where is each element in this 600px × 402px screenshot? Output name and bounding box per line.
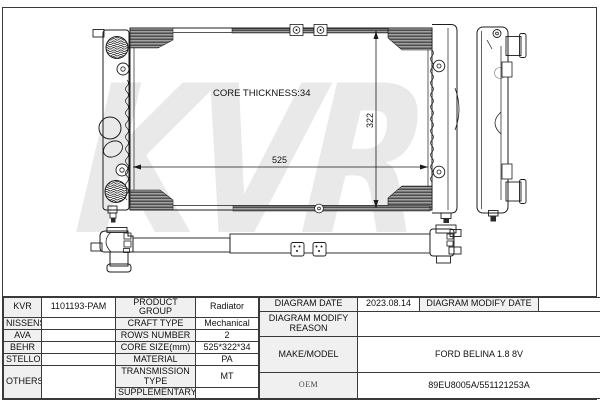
property-label: ROWS NUMBER [116, 330, 196, 342]
page-frame: KVR [2, 7, 597, 400]
property-value: 2 [196, 330, 259, 342]
part-number-cell: 1101193-PAM [42, 297, 116, 317]
property-value: Radiator [196, 297, 259, 317]
diagram-modify-date-value [539, 297, 600, 311]
radiator-front-view [93, 25, 459, 224]
drawing-area: KVR [3, 8, 596, 296]
side-tab-top [502, 62, 512, 77]
make-model-value: FORD BELINA 1.8 8V [358, 337, 600, 373]
dimension-width [133, 165, 428, 170]
part-number-cell [42, 354, 116, 366]
property-value: Mechanical [196, 318, 259, 330]
property-value: 525*322*34 [196, 342, 259, 354]
bottom-view-right-block [430, 225, 461, 263]
diagram-page: KVR [0, 0, 600, 402]
bottom-view-clips [291, 243, 326, 257]
property-label: MATERIAL [116, 354, 196, 366]
side-tab-bottom [502, 164, 512, 179]
width-dimension-label: 525 [272, 155, 287, 165]
height-dimension-label: 322 [365, 113, 375, 128]
diagram-modify-date-label: DIAGRAM MODIFY DATE [420, 297, 539, 311]
core-thickness-label: CORE THICKNESS:34 [213, 88, 311, 99]
fin-block-top-right [388, 28, 432, 50]
brand-cell: BEHR [4, 342, 42, 354]
brand-cell: AVA [4, 330, 42, 342]
diagram-date-label: DIAGRAM DATE [260, 297, 358, 311]
brand-cell: OTHERS [4, 366, 42, 399]
part-number-cell [42, 330, 116, 342]
property-label: SUPPLEMENTARY [116, 388, 196, 399]
brand-cell: KVR [4, 297, 42, 317]
radiator-side-view [477, 27, 526, 222]
left-tank-crimp-edge [126, 80, 129, 200]
property-value: PA [196, 354, 259, 366]
oem-label: OEM [260, 373, 358, 399]
left-tank [93, 30, 129, 223]
brand-cell: STELLOX [4, 354, 42, 366]
fin-block-bottom-left [130, 190, 173, 210]
core-outline [130, 28, 432, 210]
filler-cap [106, 37, 128, 59]
part-number-cell [42, 366, 116, 399]
fin-strip-bottom [233, 206, 430, 212]
drain-boss [105, 181, 127, 203]
fin-block-top-left [130, 28, 173, 48]
diagram-modify-reason-value [358, 311, 600, 337]
info-table: DIAGRAM DATE 2023.08.14 DIAGRAM MODIFY D… [259, 297, 600, 399]
property-value: MT [196, 366, 259, 388]
property-label: CORE SIZE(mm) [116, 342, 196, 354]
sensor-boss [495, 112, 501, 134]
fin-strip-top [232, 29, 388, 34]
diagram-modify-reason-label: DIAGRAM MODIFY REASON [260, 311, 358, 337]
brand-cell: NISSENS [4, 318, 42, 330]
bottom-clip [315, 204, 324, 213]
property-label: PRODUCT GROUP [116, 297, 196, 317]
outlet-pipe [101, 138, 126, 161]
right-tank [431, 25, 460, 224]
bottom-view-left-fitting [91, 228, 133, 273]
property-label: TRANSMISSION TYPE [116, 366, 196, 388]
diagram-date-value: 2023.08.14 [358, 297, 420, 311]
part-number-cell [42, 342, 116, 354]
title-block: KVR 1101193-PAM PRODUCT GROUP Radiator N… [3, 296, 596, 399]
make-model-label: MAKE/MODEL [260, 337, 358, 373]
inlet-neck [93, 30, 104, 38]
mount-hole [99, 117, 121, 139]
radiator-bottom-view [91, 225, 461, 272]
property-value [196, 388, 259, 399]
oem-value: 89EU8005A/551121253A [358, 373, 600, 399]
part-number-cell [42, 318, 116, 330]
spec-table: KVR 1101193-PAM PRODUCT GROUP Radiator N… [3, 297, 259, 399]
radiator-diagram: CORE THICKNESS:34 525 322 [3, 8, 596, 296]
property-label: CRAFT TYPE [116, 318, 196, 330]
